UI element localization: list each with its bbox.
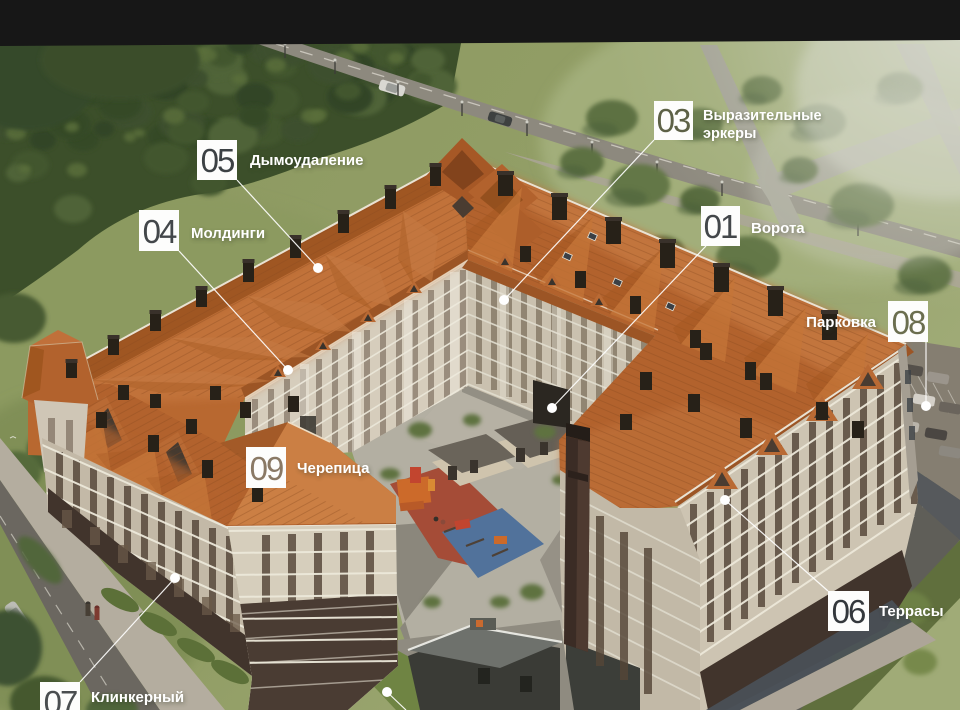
svg-text:07: 07 xyxy=(44,684,77,710)
svg-text:Террасы: Террасы xyxy=(879,603,944,620)
svg-text:03: 03 xyxy=(657,102,690,139)
svg-text:Выразительные: Выразительные xyxy=(703,108,822,124)
svg-text:01: 01 xyxy=(704,208,737,245)
svg-text:Черепица: Черепица xyxy=(297,460,370,477)
svg-text:06: 06 xyxy=(832,593,865,630)
svg-text:Парковка: Парковка xyxy=(806,314,876,331)
svg-text:Ворота: Ворота xyxy=(751,220,805,237)
svg-text:Клинкерный: Клинкерный xyxy=(91,689,184,706)
svg-text:05: 05 xyxy=(201,142,234,179)
svg-text:09: 09 xyxy=(250,450,283,487)
svg-text:Молдинги: Молдинги xyxy=(191,225,265,242)
svg-text:Дымоудаление: Дымоудаление xyxy=(250,152,364,169)
svg-text:эркеры: эркеры xyxy=(703,126,756,142)
svg-text:08: 08 xyxy=(892,304,925,341)
svg-text:04: 04 xyxy=(143,213,177,250)
